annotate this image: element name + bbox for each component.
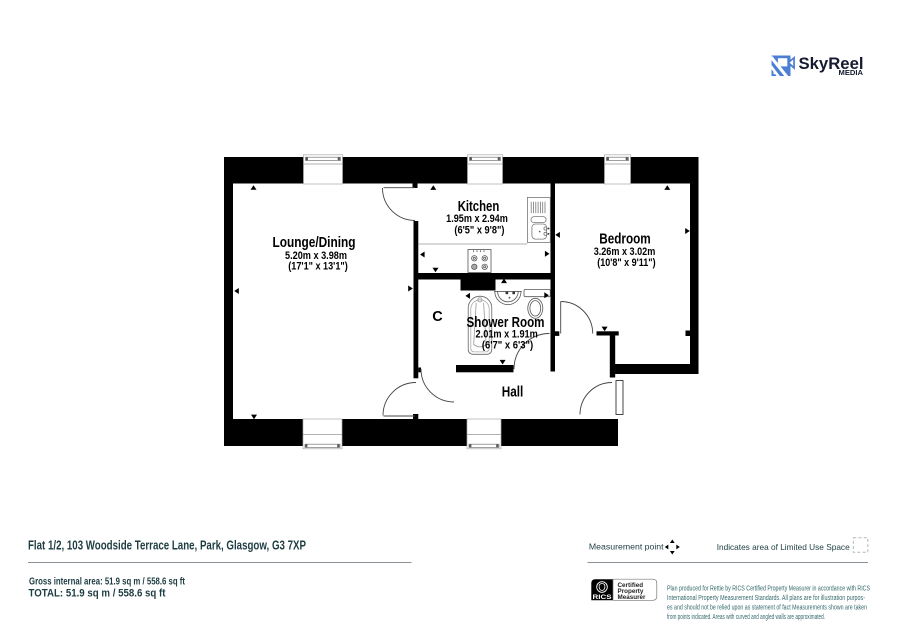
svg-text:from points indicated. Areas w: from points indicated. Areas with curved… xyxy=(667,614,825,621)
svg-text:Gross internal area: 51.9 sq m: Gross internal area: 51.9 sq m / 558.6 s… xyxy=(29,576,186,587)
svg-text:Plan produced for Rettie by RI: Plan produced for Rettie by RICS Certifi… xyxy=(667,585,870,592)
svg-text:Lounge/Dining: Lounge/Dining xyxy=(273,234,356,251)
svg-text:es and should not be relied up: es and should not be relied upon as stat… xyxy=(667,605,867,612)
svg-text:Measurement point: Measurement point xyxy=(589,542,664,552)
svg-text:TOTAL: 51.9 sq m / 558.6 sq ft: TOTAL: 51.9 sq m / 558.6 sq ft xyxy=(29,588,166,600)
svg-text:Indicates area of Limited Use: Indicates area of Limited Use Space xyxy=(717,542,850,552)
svg-text:2.01m x 1.91m: 2.01m x 1.91m xyxy=(476,329,538,341)
svg-text:Flat 1/2, 103 Woodside Terrace: Flat 1/2, 103 Woodside Terrace Lane, Par… xyxy=(28,538,306,553)
svg-text:Hall: Hall xyxy=(502,385,524,401)
svg-text:Measurer: Measurer xyxy=(618,594,647,601)
svg-text:(17'1" x 13'1"): (17'1" x 13'1") xyxy=(288,261,348,273)
svg-text:International Property Measur: International Property Measurement Stand… xyxy=(667,595,866,602)
svg-text:C: C xyxy=(432,309,443,325)
svg-text:RICS: RICS xyxy=(593,594,613,601)
svg-text:MEDIA: MEDIA xyxy=(839,70,864,77)
svg-text:(6'5" x 9'8"): (6'5" x 9'8") xyxy=(454,225,504,237)
svg-text:(6'7" x 6'3"): (6'7" x 6'3") xyxy=(482,340,533,352)
svg-text:1.95m x 2.94m: 1.95m x 2.94m xyxy=(446,213,508,225)
svg-text:(10'8" x 9'11"): (10'8" x 9'11") xyxy=(597,257,656,269)
